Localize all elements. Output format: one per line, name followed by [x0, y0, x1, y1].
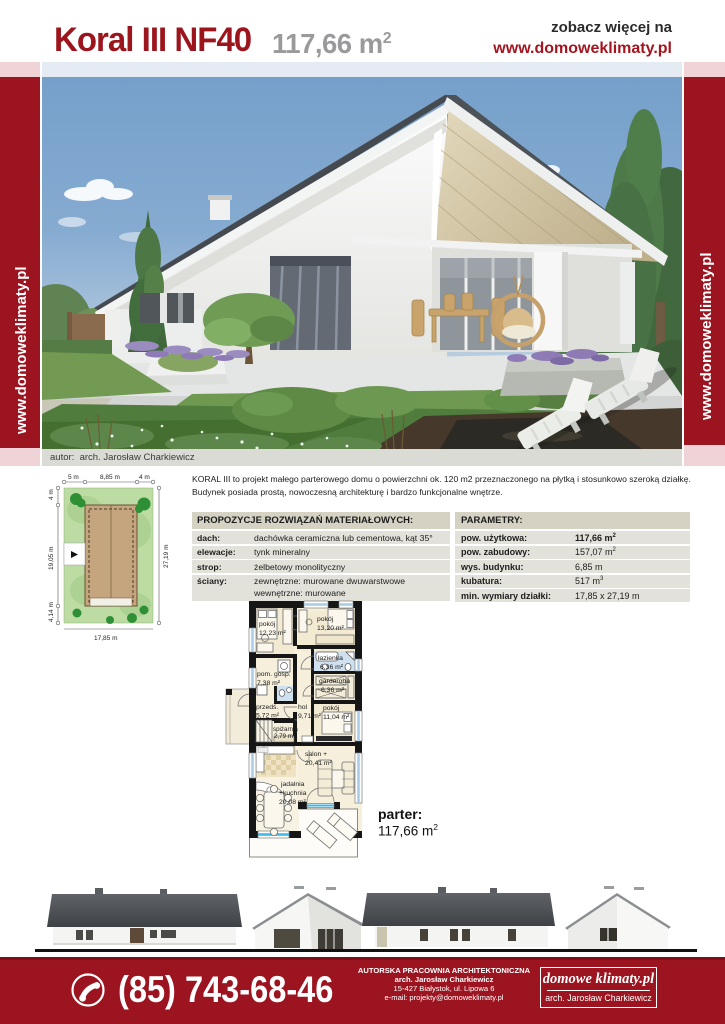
- svg-text:6,36 m²: 6,36 m²: [321, 687, 345, 694]
- svg-text:9,71 m²: 9,71 m²: [298, 713, 322, 720]
- svg-text:pokój: pokój: [259, 621, 276, 628]
- svg-text:5 m: 5 m: [68, 474, 79, 481]
- svg-text:19,05 m: 19,05 m: [48, 547, 55, 571]
- svg-text:20,08 m²: 20,08 m²: [279, 799, 307, 806]
- svg-text:łazienka: łazienka: [318, 655, 343, 662]
- svg-text:hol: hol: [298, 704, 308, 711]
- svg-text:4,14 m: 4,14 m: [48, 602, 55, 622]
- svg-text:salon +: salon +: [305, 751, 327, 758]
- svg-text:jadalnia: jadalnia: [280, 781, 305, 788]
- svg-text:27,19 m: 27,19 m: [163, 545, 170, 569]
- svg-text:11,04 m²: 11,04 m²: [323, 714, 350, 721]
- svg-text:4 m: 4 m: [139, 474, 150, 481]
- svg-text:pokój: pokój: [323, 705, 340, 712]
- svg-text:przedś.: przedś.: [256, 704, 278, 711]
- svg-text:7,38 m²: 7,38 m²: [257, 680, 281, 687]
- svg-text:pom. gosp.: pom. gosp.: [257, 671, 291, 678]
- svg-text:8,85 m: 8,85 m: [100, 474, 120, 481]
- svg-text:+kuchnia: +kuchnia: [279, 790, 307, 797]
- svg-text:pokój: pokój: [317, 616, 334, 623]
- svg-text:12,23 m²: 12,23 m²: [259, 630, 287, 637]
- svg-text:6,36 m²: 6,36 m²: [320, 664, 344, 671]
- svg-text:4 m: 4 m: [48, 489, 55, 500]
- svg-text:2,79 m²: 2,79 m²: [274, 733, 295, 740]
- svg-text:5,72 m²: 5,72 m²: [256, 713, 280, 720]
- svg-text:garderoba: garderoba: [319, 678, 350, 685]
- svg-text:17,85 m: 17,85 m: [94, 635, 118, 642]
- svg-text:20,41 m²: 20,41 m²: [305, 760, 333, 767]
- svg-text:spiżarnia: spiżarnia: [273, 726, 298, 733]
- svg-text:13,20 m²: 13,20 m²: [317, 625, 345, 632]
